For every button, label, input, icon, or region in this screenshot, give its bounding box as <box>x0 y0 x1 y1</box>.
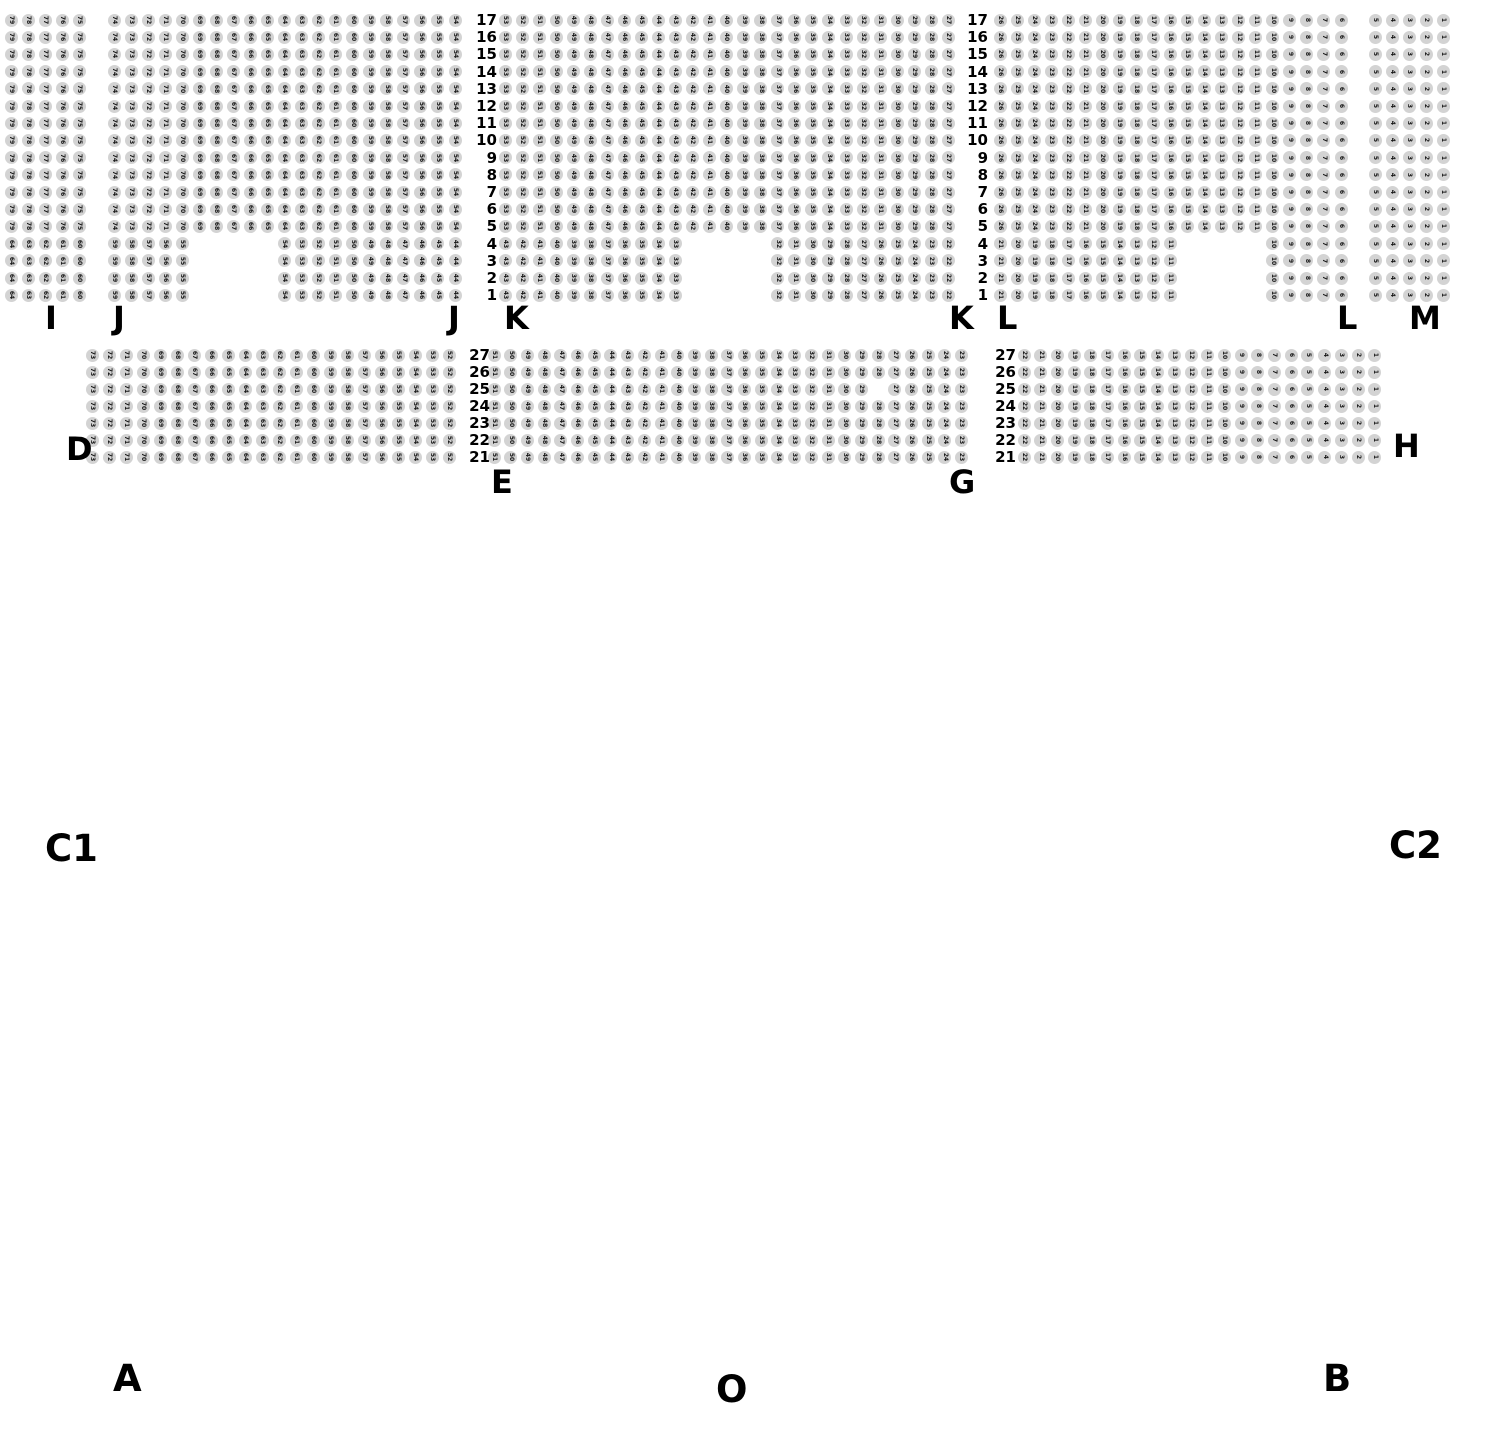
seat[interactable]: 50 <box>550 203 563 216</box>
seat[interactable]: 49 <box>567 168 580 181</box>
seat[interactable]: 45 <box>635 186 648 199</box>
seat[interactable]: 30 <box>891 186 904 199</box>
seat[interactable]: 37 <box>721 400 734 413</box>
seat[interactable]: 79 <box>5 168 18 181</box>
seat[interactable]: 64 <box>278 134 291 147</box>
seat[interactable]: 27 <box>942 186 955 199</box>
seat[interactable]: 24 <box>1028 220 1041 233</box>
seat[interactable]: 28 <box>925 100 938 113</box>
seat[interactable]: 12 <box>1232 168 1245 181</box>
seat[interactable]: 57 <box>358 383 371 396</box>
seat[interactable]: 39 <box>737 186 750 199</box>
seat[interactable]: 72 <box>103 366 116 379</box>
seat[interactable]: 72 <box>142 220 155 233</box>
seat[interactable]: 21 <box>1034 400 1047 413</box>
seat[interactable]: 70 <box>176 14 189 27</box>
seat[interactable]: 77 <box>39 151 52 164</box>
seat[interactable]: 61 <box>329 82 342 95</box>
seat[interactable]: 61 <box>329 65 342 78</box>
seat[interactable]: 12 <box>1185 451 1198 464</box>
seat[interactable]: 32 <box>805 349 818 362</box>
seat[interactable]: 60 <box>307 434 320 447</box>
seat[interactable]: 30 <box>838 366 851 379</box>
seat[interactable]: 69 <box>193 31 206 44</box>
seat[interactable]: 7 <box>1268 383 1281 396</box>
seat[interactable]: 1 <box>1437 117 1450 130</box>
seat[interactable]: 18 <box>1130 220 1143 233</box>
seat[interactable]: 41 <box>655 349 668 362</box>
seat[interactable]: 20 <box>1096 117 1109 130</box>
seat[interactable]: 42 <box>686 48 699 61</box>
seat[interactable]: 73 <box>125 100 138 113</box>
seat[interactable]: 27 <box>942 203 955 216</box>
seat[interactable]: 28 <box>840 289 853 302</box>
seat[interactable]: 1 <box>1437 186 1450 199</box>
seat[interactable]: 12 <box>1185 400 1198 413</box>
seat[interactable]: 49 <box>363 237 376 250</box>
seat[interactable]: 41 <box>703 220 716 233</box>
seat[interactable]: 44 <box>604 349 617 362</box>
seat[interactable]: 45 <box>635 151 648 164</box>
seat[interactable]: 48 <box>584 31 597 44</box>
seat[interactable]: 51 <box>533 134 546 147</box>
seat[interactable]: 7 <box>1317 272 1330 285</box>
seat[interactable]: 57 <box>358 451 371 464</box>
seat[interactable]: 17 <box>1101 434 1114 447</box>
seat[interactable]: 39 <box>567 237 580 250</box>
seat[interactable]: 14 <box>1198 14 1211 27</box>
seat[interactable]: 24 <box>1028 82 1041 95</box>
seat[interactable]: 78 <box>22 14 35 27</box>
seat[interactable]: 64 <box>5 289 18 302</box>
seat[interactable]: 13 <box>1215 14 1228 27</box>
seat[interactable]: 74 <box>108 14 121 27</box>
seat[interactable]: 21 <box>1079 134 1092 147</box>
seat[interactable]: 34 <box>771 383 784 396</box>
seat[interactable]: 54 <box>278 254 291 267</box>
seat[interactable]: 23 <box>1045 100 1058 113</box>
seat[interactable]: 56 <box>414 14 427 27</box>
seat[interactable]: 36 <box>788 151 801 164</box>
seat[interactable]: 9 <box>1283 186 1296 199</box>
seat[interactable]: 28 <box>925 151 938 164</box>
seat[interactable]: 47 <box>601 65 614 78</box>
seat[interactable]: 44 <box>652 48 665 61</box>
seat[interactable]: 72 <box>103 349 116 362</box>
seat[interactable]: 37 <box>721 451 734 464</box>
seat[interactable]: 7 <box>1268 417 1281 430</box>
seat[interactable]: 4 <box>1318 434 1331 447</box>
seat[interactable]: 70 <box>176 31 189 44</box>
seat[interactable]: 27 <box>888 400 901 413</box>
seat[interactable]: 63 <box>256 417 269 430</box>
seat[interactable]: 12 <box>1232 82 1245 95</box>
seat[interactable]: 10 <box>1266 48 1279 61</box>
seat[interactable]: 72 <box>142 31 155 44</box>
seat[interactable]: 37 <box>771 220 784 233</box>
seat[interactable]: 21 <box>1079 117 1092 130</box>
seat[interactable]: 57 <box>142 254 155 267</box>
seat[interactable]: 61 <box>290 349 303 362</box>
seat[interactable]: 14 <box>1151 349 1164 362</box>
seat[interactable]: 31 <box>874 65 887 78</box>
seat[interactable]: 58 <box>380 48 393 61</box>
seat[interactable]: 10 <box>1266 82 1279 95</box>
seat[interactable]: 52 <box>516 151 529 164</box>
seat[interactable]: 12 <box>1232 65 1245 78</box>
seat[interactable]: 67 <box>227 134 240 147</box>
seat[interactable]: 38 <box>754 134 767 147</box>
seat[interactable]: 48 <box>584 65 597 78</box>
seat[interactable]: 23 <box>925 272 938 285</box>
seat[interactable]: 28 <box>872 451 885 464</box>
seat[interactable]: 18 <box>1084 434 1097 447</box>
seat[interactable]: 29 <box>822 237 835 250</box>
seat[interactable]: 64 <box>239 434 252 447</box>
seat[interactable]: 51 <box>533 65 546 78</box>
seat[interactable]: 37 <box>771 168 784 181</box>
seat[interactable]: 45 <box>635 220 648 233</box>
seat[interactable]: 2 <box>1352 451 1365 464</box>
seat[interactable]: 11 <box>1249 48 1262 61</box>
seat[interactable]: 64 <box>239 451 252 464</box>
seat[interactable]: 52 <box>312 289 325 302</box>
seat[interactable]: 77 <box>39 14 52 27</box>
seat[interactable]: 29 <box>855 434 868 447</box>
seat[interactable]: 59 <box>324 366 337 379</box>
seat[interactable]: 69 <box>193 100 206 113</box>
seat[interactable]: 78 <box>22 48 35 61</box>
seat[interactable]: 18 <box>1130 31 1143 44</box>
seat[interactable]: 32 <box>857 100 870 113</box>
seat[interactable]: 52 <box>516 48 529 61</box>
seat[interactable]: 39 <box>737 65 750 78</box>
seat[interactable]: 47 <box>601 168 614 181</box>
seat[interactable]: 44 <box>652 14 665 27</box>
seat[interactable]: 62 <box>273 417 286 430</box>
seat[interactable]: 72 <box>142 134 155 147</box>
seat[interactable]: 32 <box>857 168 870 181</box>
seat[interactable]: 1 <box>1368 400 1381 413</box>
seat[interactable]: 54 <box>449 168 462 181</box>
seat[interactable]: 77 <box>39 65 52 78</box>
seat[interactable]: 68 <box>210 14 223 27</box>
seat[interactable]: 21 <box>1079 100 1092 113</box>
seat[interactable]: 24 <box>1028 117 1041 130</box>
seat[interactable]: 30 <box>838 400 851 413</box>
seat[interactable]: 59 <box>324 417 337 430</box>
seat[interactable]: 1 <box>1437 272 1450 285</box>
seat[interactable]: 56 <box>375 349 388 362</box>
seat[interactable]: 40 <box>720 186 733 199</box>
seat[interactable]: 16 <box>1118 366 1131 379</box>
seat[interactable]: 47 <box>554 400 567 413</box>
seat[interactable]: 79 <box>5 134 18 147</box>
seat[interactable]: 70 <box>176 100 189 113</box>
seat[interactable]: 72 <box>103 383 116 396</box>
seat[interactable]: 44 <box>604 383 617 396</box>
seat[interactable]: 11 <box>1249 14 1262 27</box>
seat[interactable]: 29 <box>908 186 921 199</box>
seat[interactable]: 36 <box>738 417 751 430</box>
seat[interactable]: 47 <box>601 48 614 61</box>
seat[interactable]: 63 <box>295 186 308 199</box>
seat[interactable]: 13 <box>1130 272 1143 285</box>
seat[interactable]: 2 <box>1420 151 1433 164</box>
seat[interactable]: 72 <box>142 82 155 95</box>
seat[interactable]: 1 <box>1437 65 1450 78</box>
seat[interactable]: 35 <box>805 186 818 199</box>
seat[interactable]: 65 <box>261 186 274 199</box>
seat[interactable]: 57 <box>358 400 371 413</box>
seat[interactable]: 54 <box>449 186 462 199</box>
seat[interactable]: 2 <box>1420 203 1433 216</box>
seat[interactable]: 54 <box>449 65 462 78</box>
seat[interactable]: 70 <box>137 451 150 464</box>
seat[interactable]: 35 <box>635 237 648 250</box>
seat[interactable]: 33 <box>840 203 853 216</box>
seat[interactable]: 53 <box>499 203 512 216</box>
seat[interactable]: 30 <box>891 14 904 27</box>
seat[interactable]: 1 <box>1437 82 1450 95</box>
seat[interactable]: 35 <box>635 254 648 267</box>
seat[interactable]: 31 <box>822 383 835 396</box>
seat[interactable]: 12 <box>1147 237 1160 250</box>
seat[interactable]: 15 <box>1096 289 1109 302</box>
seat[interactable]: 58 <box>380 151 393 164</box>
seat[interactable]: 20 <box>1096 14 1109 27</box>
seat[interactable]: 31 <box>788 289 801 302</box>
seat[interactable]: 39 <box>737 168 750 181</box>
seat[interactable]: 36 <box>618 289 631 302</box>
seat[interactable]: 6 <box>1335 65 1348 78</box>
seat[interactable]: 61 <box>290 417 303 430</box>
seat[interactable]: 71 <box>159 100 172 113</box>
seat[interactable]: 20 <box>1051 366 1064 379</box>
seat[interactable]: 63 <box>295 151 308 164</box>
seat[interactable]: 67 <box>188 349 201 362</box>
seat[interactable]: 7 <box>1317 151 1330 164</box>
seat[interactable]: 49 <box>567 82 580 95</box>
seat[interactable]: 28 <box>925 82 938 95</box>
seat[interactable]: 5 <box>1369 151 1382 164</box>
seat[interactable]: 27 <box>888 417 901 430</box>
seat[interactable]: 44 <box>652 134 665 147</box>
seat[interactable]: 45 <box>635 168 648 181</box>
seat[interactable]: 66 <box>205 349 218 362</box>
seat[interactable]: 64 <box>278 117 291 130</box>
seat[interactable]: 78 <box>22 220 35 233</box>
seat[interactable]: 32 <box>857 117 870 130</box>
seat[interactable]: 43 <box>669 100 682 113</box>
seat[interactable]: 19 <box>1068 349 1081 362</box>
seat[interactable]: 2 <box>1420 134 1433 147</box>
seat[interactable]: 23 <box>955 366 968 379</box>
seat[interactable]: 17 <box>1062 272 1075 285</box>
seat[interactable]: 8 <box>1300 272 1313 285</box>
seat[interactable]: 5 <box>1369 31 1382 44</box>
seat[interactable]: 46 <box>571 417 584 430</box>
seat[interactable]: 35 <box>805 82 818 95</box>
seat[interactable]: 50 <box>504 417 517 430</box>
seat[interactable]: 40 <box>720 220 733 233</box>
seat[interactable]: 14 <box>1198 100 1211 113</box>
seat[interactable]: 41 <box>703 151 716 164</box>
seat[interactable]: 29 <box>908 14 921 27</box>
seat[interactable]: 64 <box>278 220 291 233</box>
seat[interactable]: 72 <box>142 100 155 113</box>
seat[interactable]: 75 <box>73 100 86 113</box>
seat[interactable]: 63 <box>22 272 35 285</box>
seat[interactable]: 20 <box>1096 100 1109 113</box>
seat[interactable]: 33 <box>840 31 853 44</box>
seat[interactable]: 18 <box>1130 82 1143 95</box>
seat[interactable]: 17 <box>1101 400 1114 413</box>
seat[interactable]: 55 <box>176 272 189 285</box>
seat[interactable]: 25 <box>1011 48 1024 61</box>
seat[interactable]: 12 <box>1232 48 1245 61</box>
seat[interactable]: 64 <box>239 400 252 413</box>
seat[interactable]: 31 <box>874 117 887 130</box>
seat[interactable]: 4 <box>1386 48 1399 61</box>
seat[interactable]: 37 <box>771 117 784 130</box>
seat[interactable]: 10 <box>1218 366 1231 379</box>
seat[interactable]: 21 <box>1034 366 1047 379</box>
seat[interactable]: 60 <box>346 134 359 147</box>
seat[interactable]: 23 <box>1045 48 1058 61</box>
seat[interactable]: 68 <box>171 400 184 413</box>
seat[interactable]: 21 <box>1034 451 1047 464</box>
seat[interactable]: 50 <box>550 134 563 147</box>
seat[interactable]: 54 <box>449 82 462 95</box>
seat[interactable]: 60 <box>346 48 359 61</box>
seat[interactable]: 59 <box>363 186 376 199</box>
seat[interactable]: 65 <box>261 100 274 113</box>
seat[interactable]: 15 <box>1181 168 1194 181</box>
seat[interactable]: 54 <box>278 289 291 302</box>
seat[interactable]: 29 <box>855 451 868 464</box>
seat[interactable]: 27 <box>942 134 955 147</box>
seat[interactable]: 23 <box>1045 134 1058 147</box>
seat[interactable]: 43 <box>669 203 682 216</box>
seat[interactable]: 22 <box>1062 186 1075 199</box>
seat[interactable]: 64 <box>5 272 18 285</box>
seat[interactable]: 78 <box>22 100 35 113</box>
seat[interactable]: 19 <box>1113 186 1126 199</box>
seat[interactable]: 69 <box>193 151 206 164</box>
seat[interactable]: 36 <box>788 48 801 61</box>
seat[interactable]: 8 <box>1251 366 1264 379</box>
seat[interactable]: 46 <box>618 31 631 44</box>
seat[interactable]: 64 <box>239 366 252 379</box>
seat[interactable]: 15 <box>1134 349 1147 362</box>
seat[interactable]: 42 <box>516 237 529 250</box>
seat[interactable]: 11 <box>1249 82 1262 95</box>
seat[interactable]: 12 <box>1232 117 1245 130</box>
seat[interactable]: 13 <box>1168 383 1181 396</box>
seat[interactable]: 29 <box>908 203 921 216</box>
seat[interactable]: 38 <box>754 100 767 113</box>
seat[interactable]: 38 <box>705 366 718 379</box>
seat[interactable]: 61 <box>329 117 342 130</box>
seat[interactable]: 2 <box>1420 65 1433 78</box>
seat[interactable]: 62 <box>273 349 286 362</box>
seat[interactable]: 41 <box>703 48 716 61</box>
seat[interactable]: 74 <box>108 220 121 233</box>
seat[interactable]: 23 <box>1045 186 1058 199</box>
seat[interactable]: 62 <box>273 451 286 464</box>
seat[interactable]: 73 <box>86 383 99 396</box>
seat[interactable]: 53 <box>426 383 439 396</box>
seat[interactable]: 6 <box>1335 100 1348 113</box>
seat[interactable]: 27 <box>888 451 901 464</box>
seat[interactable]: 26 <box>994 48 1007 61</box>
seat[interactable]: 49 <box>567 31 580 44</box>
seat[interactable]: 65 <box>261 134 274 147</box>
seat[interactable]: 37 <box>771 203 784 216</box>
seat[interactable]: 73 <box>125 134 138 147</box>
seat[interactable]: 47 <box>554 417 567 430</box>
seat[interactable]: 64 <box>278 65 291 78</box>
seat[interactable]: 22 <box>1062 31 1075 44</box>
seat[interactable]: 66 <box>205 383 218 396</box>
seat[interactable]: 6 <box>1335 168 1348 181</box>
seat[interactable]: 33 <box>840 186 853 199</box>
seat[interactable]: 60 <box>73 272 86 285</box>
seat[interactable]: 60 <box>346 14 359 27</box>
seat[interactable]: 52 <box>312 254 325 267</box>
seat[interactable]: 4 <box>1386 168 1399 181</box>
seat[interactable]: 11 <box>1249 65 1262 78</box>
seat[interactable]: 23 <box>1045 31 1058 44</box>
seat[interactable]: 61 <box>56 272 69 285</box>
seat[interactable]: 24 <box>1028 48 1041 61</box>
seat[interactable]: 43 <box>499 254 512 267</box>
seat[interactable]: 53 <box>295 272 308 285</box>
seat[interactable]: 76 <box>56 48 69 61</box>
seat[interactable]: 53 <box>499 14 512 27</box>
seat[interactable]: 38 <box>705 417 718 430</box>
seat[interactable]: 49 <box>567 14 580 27</box>
seat[interactable]: 32 <box>857 65 870 78</box>
seat[interactable]: 4 <box>1386 289 1399 302</box>
seat[interactable]: 14 <box>1198 48 1211 61</box>
seat[interactable]: 18 <box>1130 134 1143 147</box>
seat[interactable]: 33 <box>669 272 682 285</box>
seat[interactable]: 79 <box>5 100 18 113</box>
seat[interactable]: 15 <box>1181 14 1194 27</box>
seat[interactable]: 24 <box>908 254 921 267</box>
seat[interactable]: 9 <box>1283 168 1296 181</box>
seat[interactable]: 44 <box>449 272 462 285</box>
seat[interactable]: 69 <box>193 65 206 78</box>
seat[interactable]: 68 <box>171 434 184 447</box>
seat[interactable]: 34 <box>822 134 835 147</box>
seat[interactable]: 7 <box>1317 31 1330 44</box>
seat[interactable]: 28 <box>872 434 885 447</box>
seat[interactable]: 25 <box>1011 168 1024 181</box>
seat[interactable]: 18 <box>1045 289 1058 302</box>
seat[interactable]: 19 <box>1113 31 1126 44</box>
seat[interactable]: 4 <box>1386 117 1399 130</box>
seat[interactable]: 51 <box>329 289 342 302</box>
seat[interactable]: 44 <box>604 451 617 464</box>
seat[interactable]: 48 <box>380 254 393 267</box>
seat[interactable]: 78 <box>22 203 35 216</box>
seat[interactable]: 11 <box>1201 417 1214 430</box>
seat[interactable]: 68 <box>210 151 223 164</box>
seat[interactable]: 29 <box>908 82 921 95</box>
